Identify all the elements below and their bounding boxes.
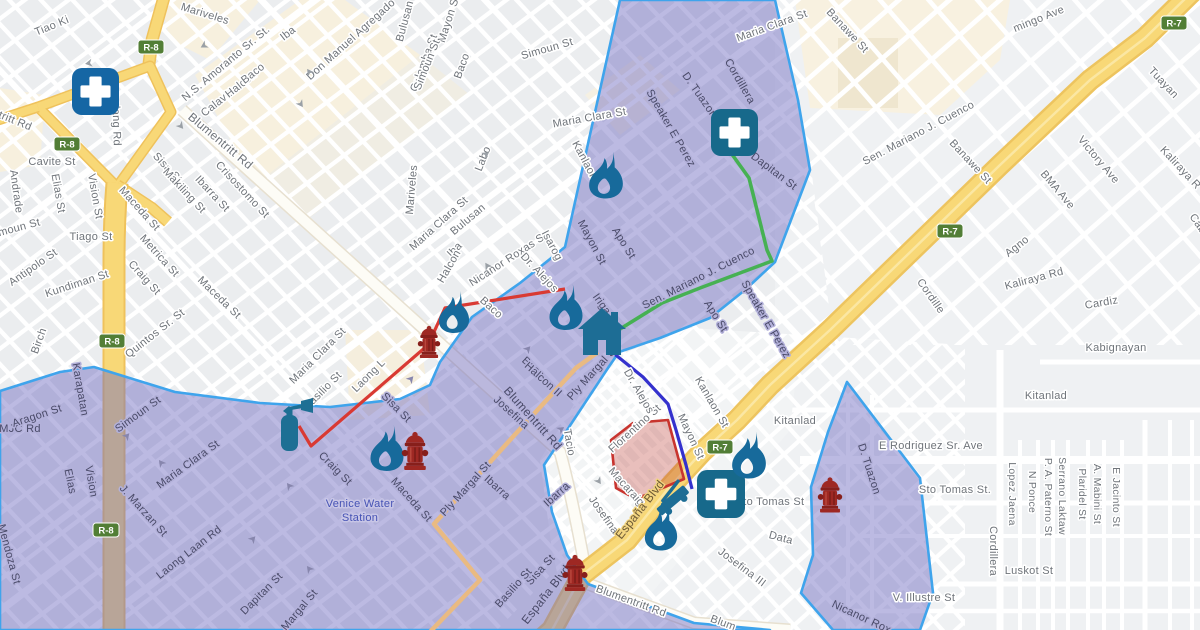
svg-text:Plaridel St: Plaridel St <box>1076 468 1088 519</box>
svg-text:Kitanlad: Kitanlad <box>774 415 816 427</box>
svg-text:R-8: R-8 <box>98 526 113 537</box>
svg-text:Cavite St: Cavite St <box>28 156 75 168</box>
svg-text:Station: Station <box>342 512 378 524</box>
svg-text:R-7: R-7 <box>942 227 957 238</box>
svg-text:E Jacinto St: E Jacinto St <box>1110 467 1122 527</box>
svg-text:R-8: R-8 <box>59 140 74 151</box>
svg-text:P. A. Paterno St: P. A. Paterno St <box>1042 458 1054 536</box>
svg-text:E Rodriguez Sr. Ave: E Rodriguez Sr. Ave <box>879 440 983 452</box>
svg-text:Venice Water: Venice Water <box>326 498 395 510</box>
svg-text:Cordillera: Cordillera <box>987 526 999 577</box>
svg-text:Tiago St: Tiago St <box>70 231 113 243</box>
svg-text:Kabignayan: Kabignayan <box>1085 342 1146 354</box>
svg-text:Serrano Laktaw: Serrano Laktaw <box>1056 457 1068 535</box>
svg-text:N Ponce: N Ponce <box>1026 471 1038 513</box>
svg-text:Lopez Jaena: Lopez Jaena <box>1006 462 1018 525</box>
svg-text:V. Illustre St: V. Illustre St <box>893 592 956 604</box>
svg-text:Sto Tomas St.: Sto Tomas St. <box>919 484 991 496</box>
svg-text:R-8: R-8 <box>104 337 119 348</box>
svg-text:Kitanlad: Kitanlad <box>1025 390 1067 402</box>
svg-text:Sto Tomas St: Sto Tomas St <box>736 496 805 508</box>
svg-text:Luskot St: Luskot St <box>1005 565 1054 577</box>
svg-text:A. Mabini St: A. Mabini St <box>1091 464 1103 524</box>
svg-text:R-8: R-8 <box>143 43 158 54</box>
svg-text:R-7: R-7 <box>1166 19 1181 30</box>
svg-text:R-7: R-7 <box>712 443 727 454</box>
